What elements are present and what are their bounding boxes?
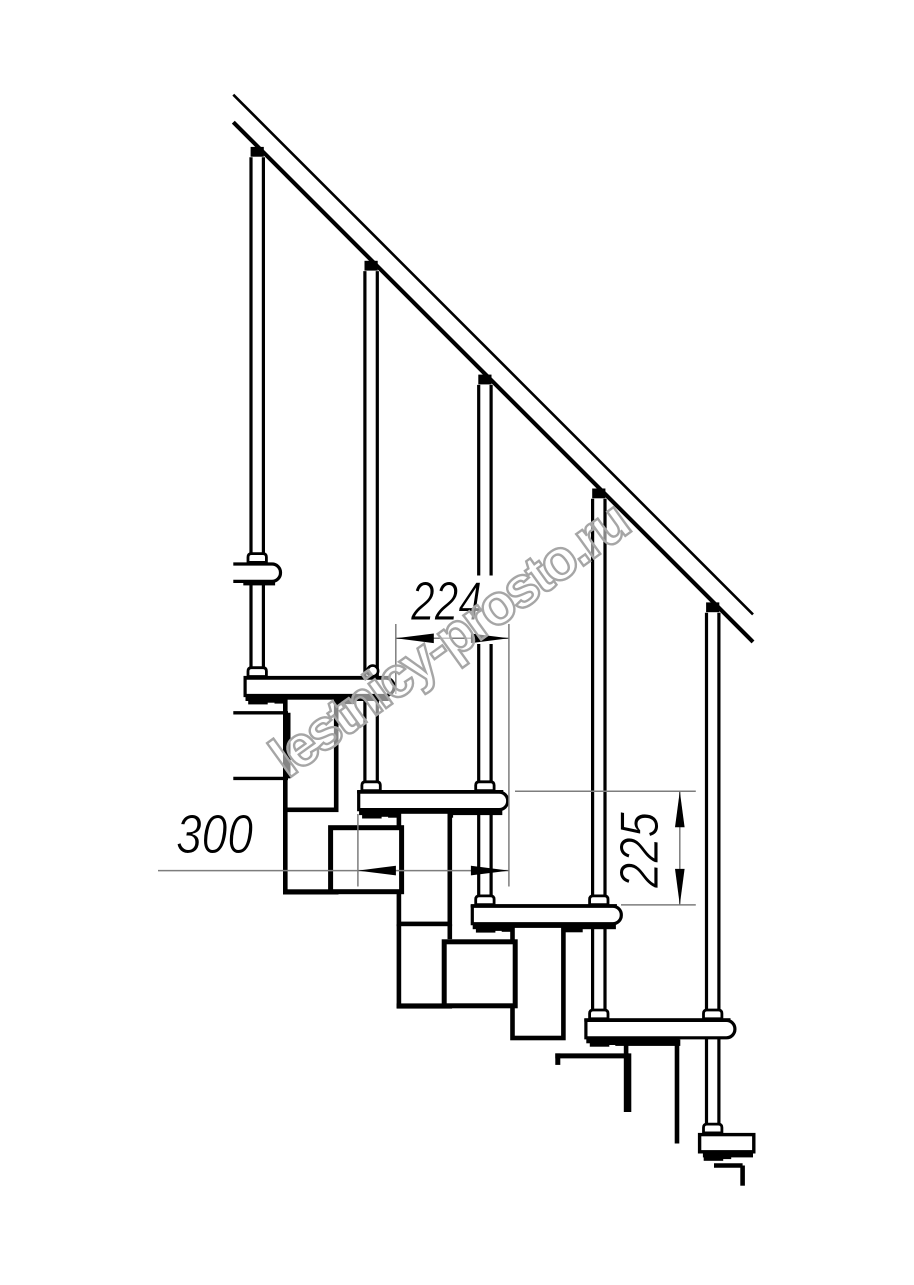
svg-text:225: 225 — [608, 812, 670, 889]
svg-text:300: 300 — [176, 803, 253, 865]
